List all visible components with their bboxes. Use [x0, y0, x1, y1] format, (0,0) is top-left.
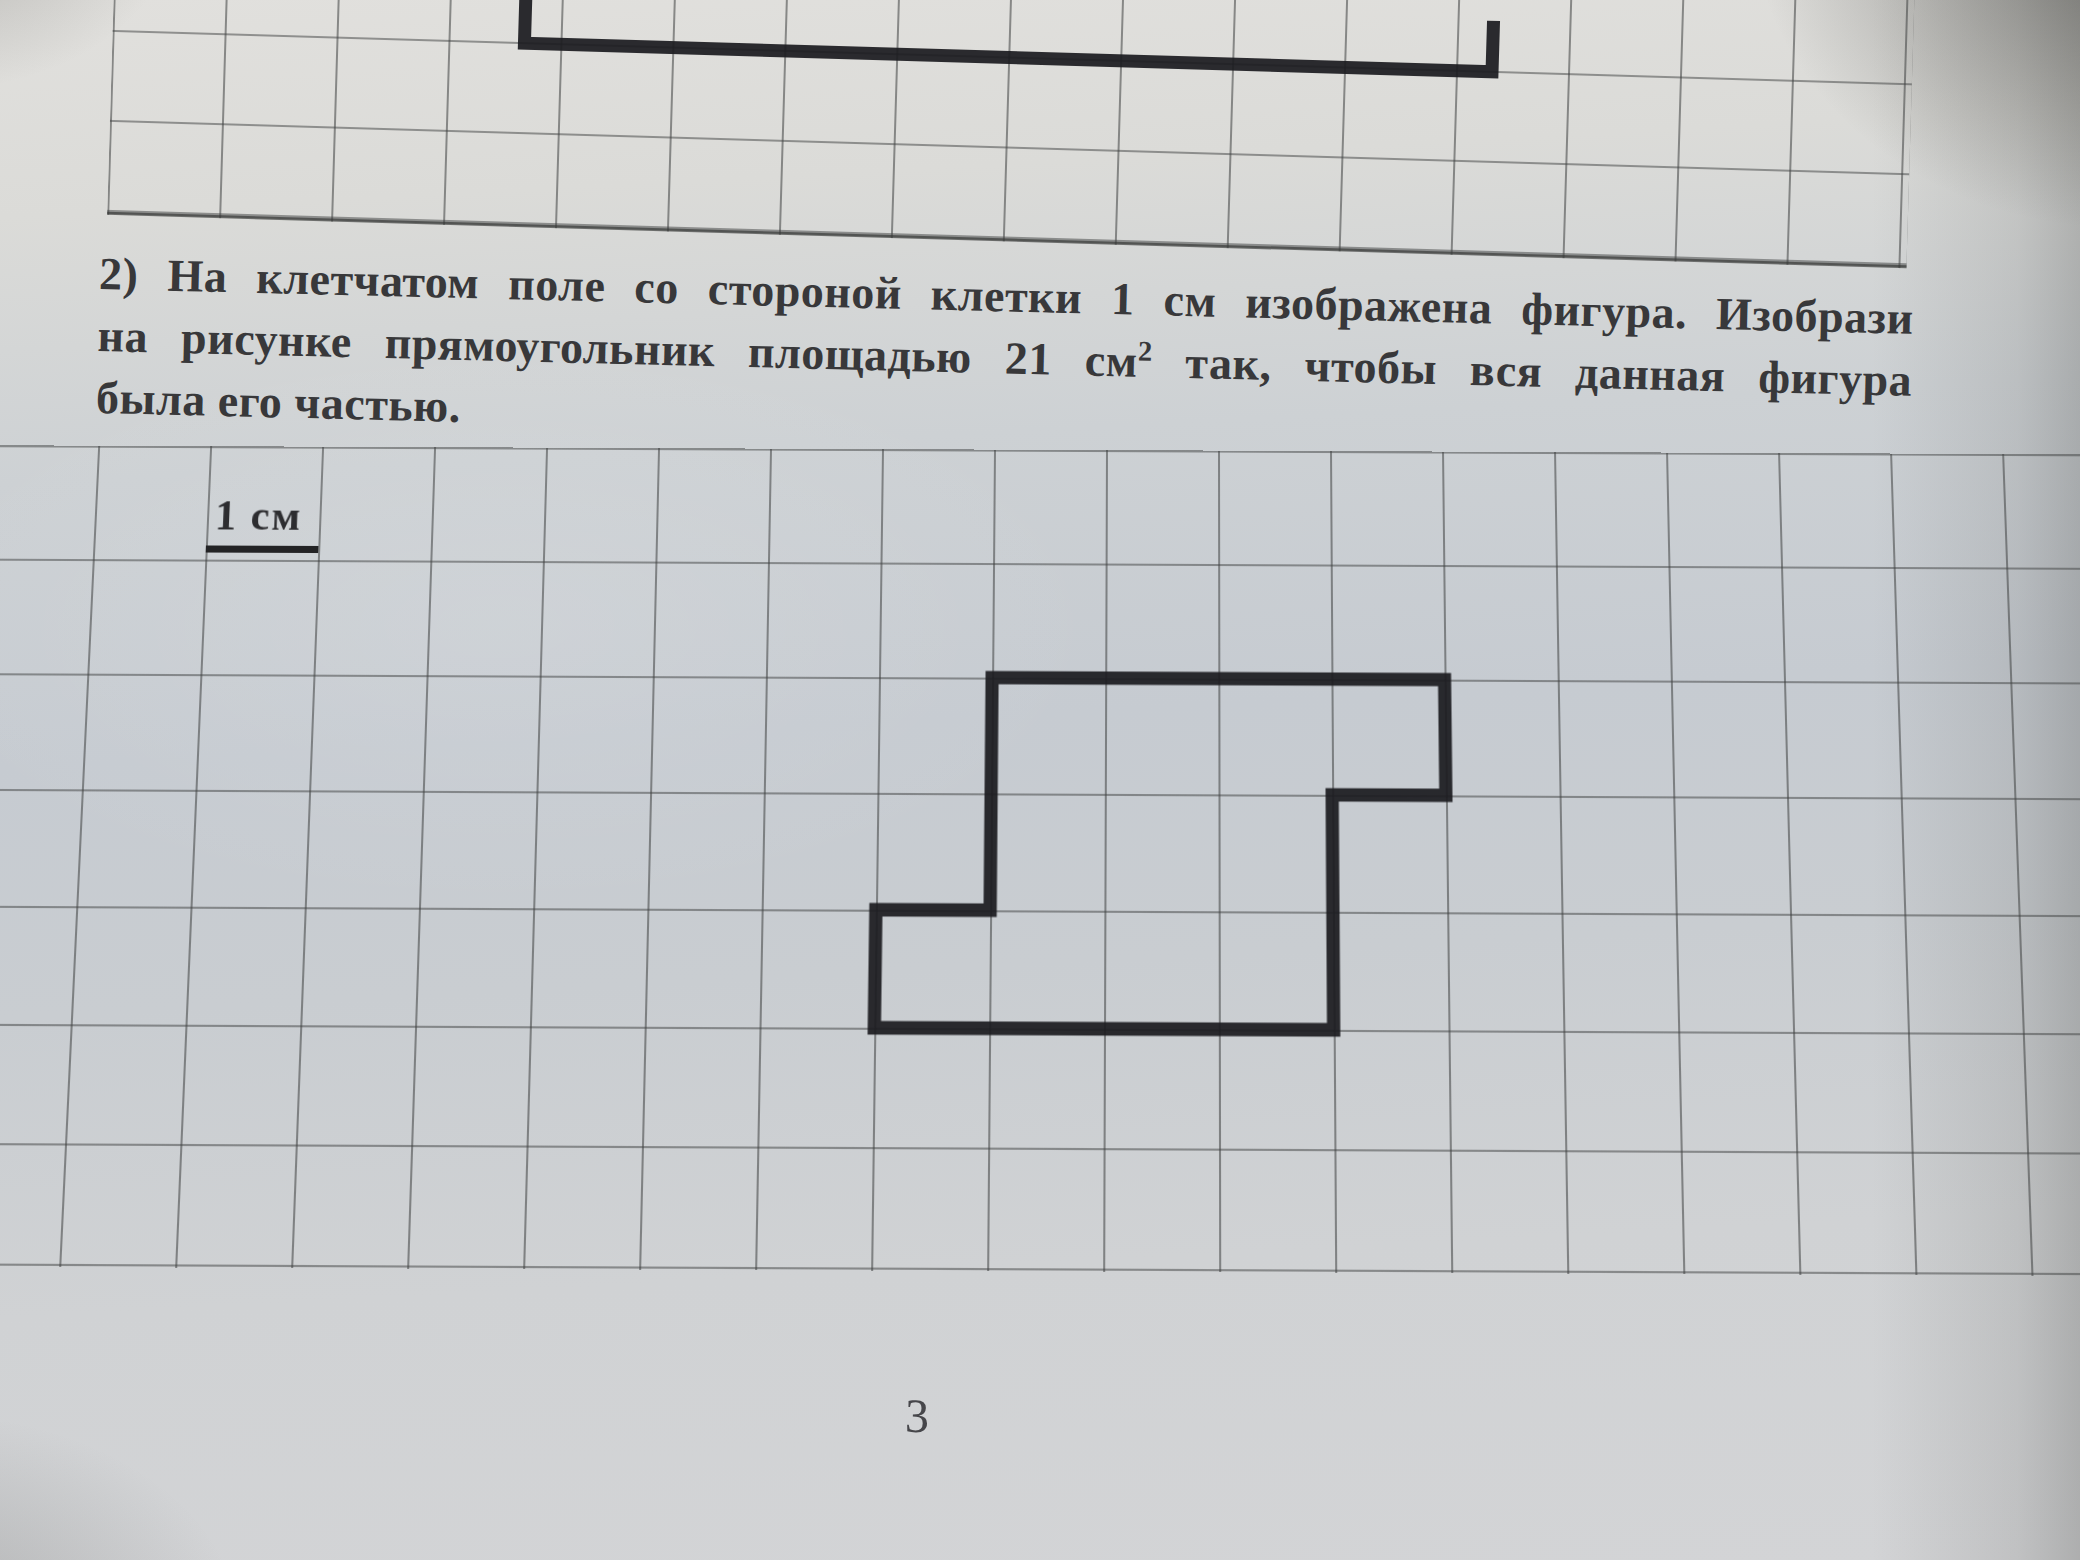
top-grid [107, 0, 1917, 268]
previous-figure-bottom-edge [524, 0, 1493, 72]
main-grid: 1 см [0, 445, 2080, 1277]
previous-figure-outline [107, 0, 1917, 265]
problem-line-2-end: так, чтобы вся данная фигура [1152, 336, 1913, 406]
photographed-workbook-page: 2) На клетчатом поле со стороной клетки … [0, 0, 2080, 1560]
problem-text: 2) На клетчатом поле со стороной клетки … [95, 243, 1914, 474]
given-figure [0, 445, 2080, 1277]
squared-superscript: 2 [1138, 335, 1154, 366]
page-number: 3 [905, 1388, 930, 1443]
given-figure-outline [874, 677, 1448, 1030]
